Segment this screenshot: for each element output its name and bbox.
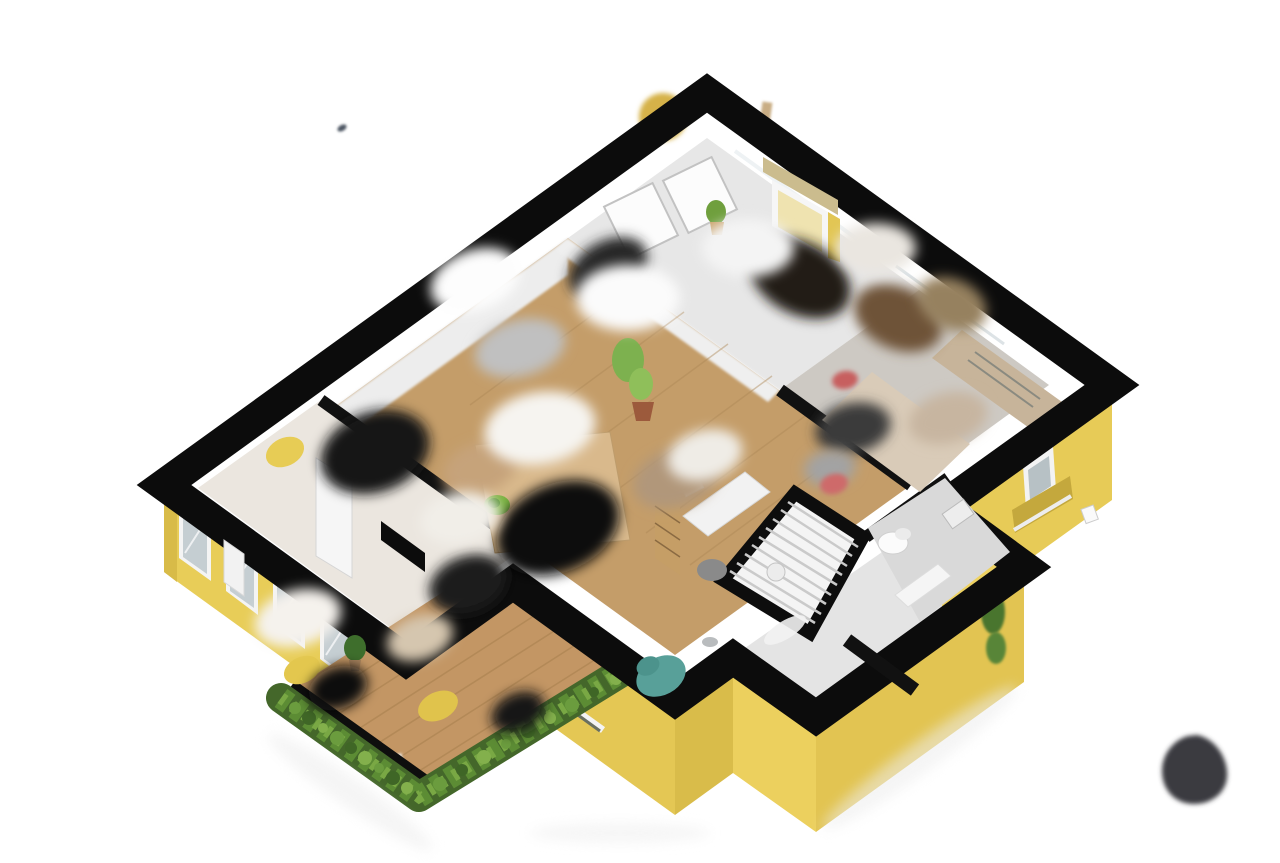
hedge-dot	[318, 723, 328, 733]
climbing-plant	[986, 632, 1006, 664]
hedge-dot	[330, 731, 344, 745]
tall-plant-leaves	[629, 368, 653, 400]
hedge-dot	[386, 771, 400, 785]
hedge-dot	[358, 751, 372, 765]
privacy-blur	[702, 219, 794, 277]
hedge-dot	[433, 777, 447, 791]
privacy-blur	[576, 265, 680, 331]
hedge-dot	[374, 763, 384, 773]
toilet-tank	[895, 528, 911, 540]
hedge-dot	[302, 711, 316, 725]
hedge-dot	[401, 782, 413, 794]
floorplan-render-svg	[0, 0, 1280, 863]
hedge-dot	[565, 698, 579, 712]
hedge-dot	[501, 739, 511, 749]
hedge-dot	[345, 742, 357, 754]
hedge-dot	[589, 687, 599, 697]
ground-shadow	[530, 823, 710, 843]
floorplan-3d-overview	[0, 0, 1280, 863]
privacy-blur	[836, 223, 916, 273]
hedge-dot	[289, 702, 301, 714]
hedge-dot	[456, 764, 468, 776]
desk-chair	[697, 559, 727, 581]
pet-bowl	[702, 637, 718, 647]
hedge-dot	[477, 750, 491, 764]
newel-ball	[767, 563, 785, 581]
cabinet-plant	[706, 200, 726, 224]
hedge-dot	[544, 712, 556, 724]
wing-plant	[344, 635, 366, 661]
